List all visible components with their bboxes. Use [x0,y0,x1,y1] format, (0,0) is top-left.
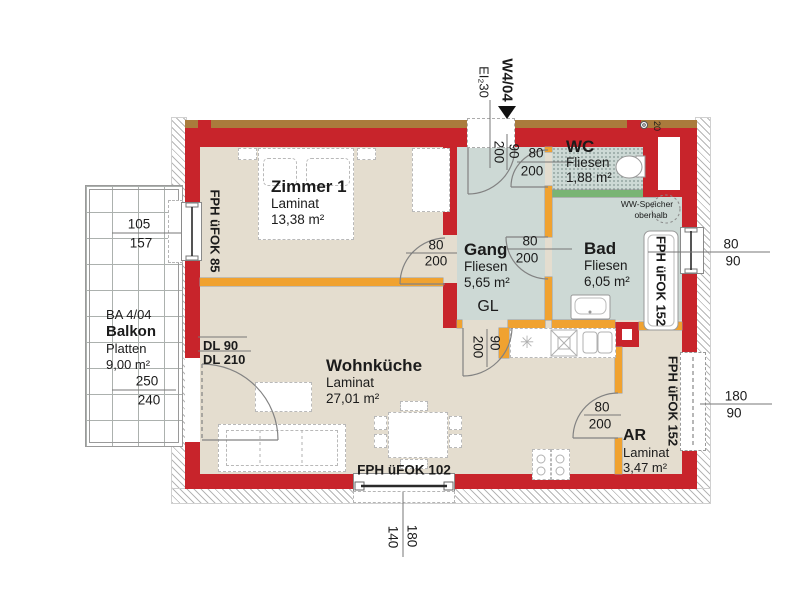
window-bottom-dim-den: 140 [386,526,401,549]
room-floor: Fliesen [566,155,612,170]
entry-door-dim-den: 200 [492,141,507,164]
room-label-wc: WC Fliesen 1,88 m² [566,138,612,185]
dining-table [388,412,448,458]
balcony-dim-num: 250 [136,374,159,389]
window-bad-dim-num: 80 [723,237,738,252]
wall-zimmer-wohnkueche [200,278,443,286]
window-left-dim-den: 157 [130,236,153,251]
facade-strip-block [627,120,641,128]
wall-bad-bottom [552,320,615,328]
vent-label: 20 [652,121,662,131]
wc-door-dim-num: 80 [528,146,543,161]
balcony-door-opening [185,358,200,442]
window-bottom-dim-num: 180 [405,525,420,548]
wall-zimmer-gang-lower [443,283,457,328]
room-area: 1,88 m² [566,170,612,185]
room-title: AR [623,427,669,445]
ww-speicher-note-line1: WW-Speicher [621,199,673,209]
ww-speicher-note-line2: oberhalb [634,210,667,220]
column-core [622,329,632,340]
zimmer1-door-dim-den: 200 [425,254,448,269]
window-ar-label: FPH üFOK 152 [666,356,681,446]
gl-label: GL [477,298,498,316]
room-area: 13,38 m² [271,212,347,228]
fire-rating-label: EI₂30 [477,66,492,98]
floor-plan: W4/04 EI₂30 90 200 20 Zimmer 1 Laminat 1… [0,0,810,592]
wall-gang-bad [545,277,552,320]
room-title: Wohnküche [326,356,422,375]
balcony-door-label-line2: DL 210 [203,352,245,367]
sofa-seat [226,430,338,466]
room-area: 5,65 m² [464,275,510,291]
room-area: 3,47 m² [623,460,669,475]
room-area: 9,00 m² [106,357,156,373]
wall-gang-wc-b [545,186,552,237]
room-label-bad: Bad Fliesen 6,05 m² [584,239,630,290]
gang-door-dim-den: 200 [471,336,486,359]
wall-gang-bottom-right [508,320,545,328]
room-floor: Fliesen [584,258,630,274]
wall-gang-bottom-left [457,320,462,328]
window-left-dim-num: 105 [128,217,151,232]
window-bad-dim-den: 90 [725,254,740,269]
room-area: 27,01 m² [326,391,422,407]
facade-strip-block [198,120,211,128]
ar-door-dim-num: 80 [594,400,609,415]
room-label-balkon: BA 4/04 Balkon Platten 9,00 m² [106,307,156,373]
gang-door-dim-num: 90 [488,335,503,350]
chair [374,416,387,430]
room-label-ar: AR Laminat 3,47 m² [623,427,669,475]
room-title: Balkon [106,323,156,341]
facade-strip [185,120,697,128]
room-title: WC [566,138,612,155]
window-bottom-label: FPH üFOK 102 [357,463,451,478]
wc-bad-glass-wall [552,190,656,197]
nightstand [238,148,257,160]
wall-ar-left-lower [615,438,622,474]
coffee-table [255,382,312,412]
room-label-gang: Gang Fliesen 5,65 m² [464,240,510,291]
room-floor: Fliesen [464,259,510,275]
room-floor: Laminat [623,445,669,460]
balcony-code: BA 4/04 [106,307,156,323]
balcony-door-label-line1: DL 90 [203,338,238,353]
chair [374,434,387,448]
room-label-wohnkueche: Wohnküche Laminat 27,01 m² [326,356,422,407]
window-bottom-sill [353,491,455,503]
window-bad [680,227,704,274]
room-floor: Platten [106,341,156,357]
entry-arrow-icon [498,106,516,119]
chair [449,434,462,448]
zimmer1-door-dim-num: 80 [428,238,443,253]
appliance [532,449,551,480]
ar-door-dim-den: 200 [589,417,612,432]
wc-door-dim-den: 200 [521,164,544,179]
room-title: Zimmer 1 [271,177,347,196]
hob-symbol: ✳ [520,333,534,353]
wall-top [185,128,697,147]
room-floor: Laminat [326,375,422,391]
unit-label: W4/04 [499,58,516,101]
window-left-label: FPH üFOK 85 [208,189,223,272]
window-bad-label: FPH üFOK 152 [654,236,669,326]
room-title: Bad [584,239,630,258]
room-label-zimmer1: Zimmer 1 Laminat 13,38 m² [271,177,347,228]
window-left [181,202,202,261]
window-ar-dim-den: 90 [726,406,741,421]
wall-gang-wc-a [545,147,552,152]
appliance [551,449,570,480]
wall-ar-left-upper [615,347,622,393]
nightstand [357,148,376,160]
wardrobe [412,148,450,212]
bad-door-dim-num: 80 [522,234,537,249]
room-floor: Laminat [271,196,347,212]
room-title: Gang [464,240,510,259]
chair [449,416,462,430]
window-ar [680,352,706,451]
entry-door-dim-num: 90 [507,143,522,158]
bad-door-dim-den: 200 [516,251,539,266]
installation-shaft [658,137,680,190]
balcony-dim-den: 240 [138,393,161,408]
window-ar-dim-num: 180 [725,389,748,404]
room-area: 6,05 m² [584,274,630,290]
